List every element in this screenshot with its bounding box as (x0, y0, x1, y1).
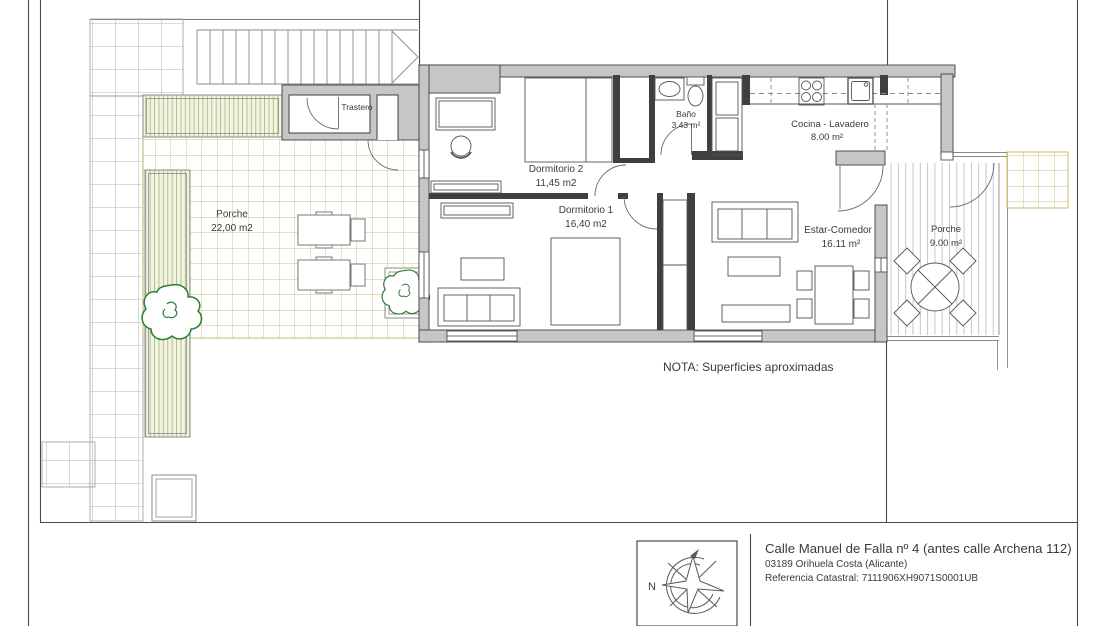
shelf (431, 181, 501, 193)
label-dormitorio1: Dormitorio 1 (559, 205, 614, 216)
area-dormitorio2: 11,45 m2 (536, 178, 577, 189)
bed (525, 78, 612, 162)
shower (712, 78, 742, 155)
bathroom-fixtures (655, 77, 742, 155)
bedroom2-furniture (431, 78, 612, 193)
compass-north-label: N (648, 581, 656, 593)
stove (799, 78, 824, 105)
wall-cap (941, 152, 953, 160)
label-bano: Baño (676, 109, 696, 119)
toilet (687, 77, 704, 106)
address-line-1: Calle Manuel de Falla nº 4 (antes calle … (765, 541, 1072, 556)
living-room-furniture (712, 202, 869, 324)
wardrobe (663, 200, 687, 330)
shelf (441, 203, 513, 218)
paving-grid (42, 442, 95, 487)
plan-sheet: Trastero Dormitorio 2 11,45 m2 Dormitori… (0, 0, 1110, 626)
dining-set (797, 266, 869, 324)
label-estar: Estar-Comedor (804, 225, 872, 236)
compass-rose-icon (662, 549, 724, 613)
stairs-direction-arrow-icon (392, 31, 418, 83)
kitchen-fixtures (750, 78, 941, 150)
window (419, 252, 429, 298)
door-dormitorio1 (624, 196, 657, 229)
window (694, 331, 762, 341)
paving-grid (90, 19, 183, 96)
area-bano: 3.43 m² (672, 120, 701, 130)
paving-grid (90, 96, 143, 521)
tile-pad-ne (1007, 152, 1068, 208)
kitchen-sink (848, 78, 873, 104)
sofa (712, 202, 798, 242)
address-line-2: 03189 Orihuela Costa (Alicante) (765, 559, 907, 570)
area-dormitorio1: 16,40 m2 (565, 219, 607, 230)
door-estar (838, 166, 883, 211)
area-porche-oeste: 22,00 m2 (211, 223, 253, 234)
address-line-3: Referencia Catastral: 7111906XH9071S0001… (765, 573, 978, 584)
coffee-table (728, 257, 780, 276)
note-text: NOTA: Superficies aproximadas (663, 360, 834, 374)
bed (551, 238, 620, 325)
stairs (197, 30, 418, 84)
label-porche-oeste: Porche (216, 209, 248, 220)
floor-plan: Trastero Dormitorio 2 11,45 m2 Dormitori… (0, 0, 1110, 626)
title-block: N Calle Manuel de Falla nº 4 (antes call… (637, 534, 1072, 626)
round-table (911, 263, 959, 311)
label-trastero: Trastero (341, 102, 373, 112)
tv-cabinet (722, 305, 790, 322)
window (447, 331, 517, 341)
utility-box (152, 475, 196, 521)
sofa (438, 288, 520, 326)
area-porche-este: 9.00 m² (930, 238, 962, 249)
window (875, 258, 887, 272)
chair (451, 136, 471, 158)
bath-sink (655, 78, 684, 100)
side-table (461, 258, 504, 280)
label-porche-este: Porche (931, 224, 961, 235)
area-cocina: 8.00 m² (811, 132, 843, 143)
bedroom1-furniture (438, 200, 687, 330)
window (419, 150, 429, 178)
label-cocina: Cocina - Lavadero (791, 119, 869, 130)
desk (436, 98, 495, 130)
planter-horizontal (143, 95, 282, 137)
area-estar: 16.11 m² (822, 239, 861, 250)
label-dormitorio2: Dormitorio 2 (529, 164, 584, 175)
door-dormitorio2 (595, 165, 626, 196)
